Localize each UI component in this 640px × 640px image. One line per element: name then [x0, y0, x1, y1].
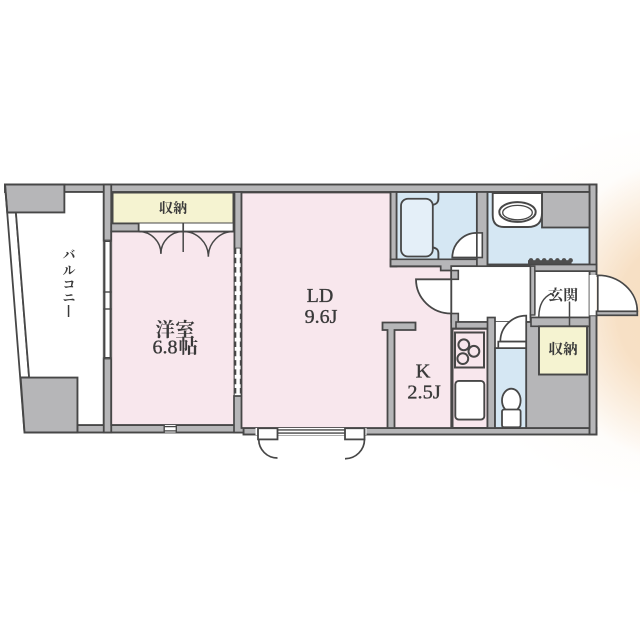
svg-text:K: K [416, 361, 431, 383]
svg-text:LD: LD [307, 285, 334, 307]
svg-text:6.8: 6.8 [153, 337, 178, 359]
svg-text:2.5J: 2.5J [407, 382, 441, 404]
svg-text:9.6J: 9.6J [305, 306, 338, 328]
